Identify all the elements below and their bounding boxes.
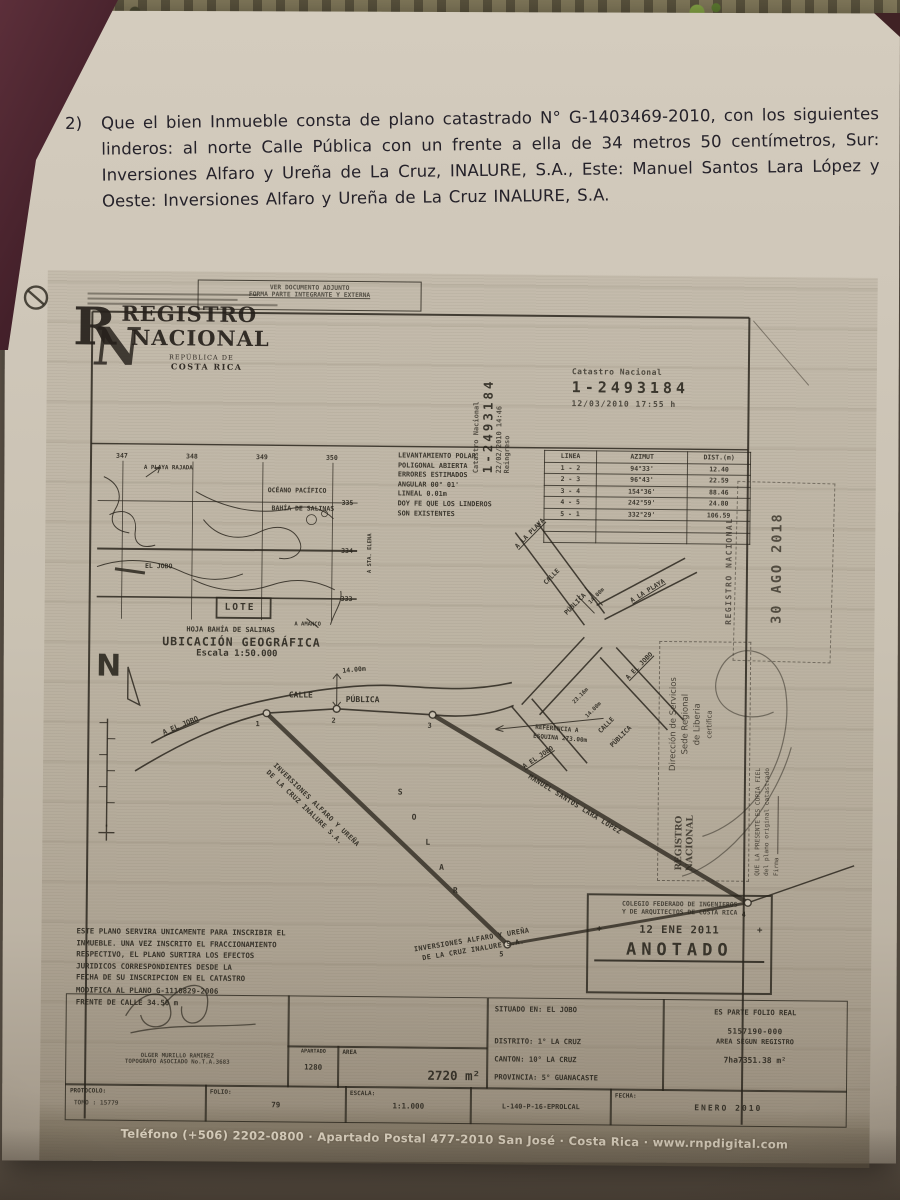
cfia-date: 12 ENE 2011 bbox=[639, 924, 720, 937]
attach-stamp-line2: FORMA PARTE INTEGRANTE Y EXTERNA bbox=[199, 291, 421, 300]
cert-line4: certifica bbox=[703, 642, 717, 806]
vertex-number: 3 bbox=[427, 722, 431, 730]
survey-notes: LEVANTAMIENTO POLAR POLIGONAL ABIERTA ER… bbox=[397, 451, 492, 519]
cert-body: QUE LA PRESENTE ES COPIA FIEL del plano … bbox=[753, 632, 783, 882]
apartado-value: 1280 bbox=[288, 1054, 338, 1071]
date-stamp: 30 AGO 2018 bbox=[768, 508, 785, 628]
table-row bbox=[544, 531, 750, 544]
location-box: SITUADO EN: EL JOBO DISTRITO: 1° LA CRUZ… bbox=[487, 997, 665, 1091]
plano-ref: L-140-P-16-EPROLCAL bbox=[471, 1088, 611, 1111]
signature-box: OLGER MURILLO RAMIREZ TOPOGRAFO ASOCIADO… bbox=[65, 993, 290, 1087]
map-label-el-jobo: EL JOBO bbox=[145, 562, 172, 570]
logo-word2: NACIONAL bbox=[131, 325, 270, 351]
cell bbox=[596, 531, 687, 543]
table-header: AZIMUT bbox=[597, 451, 688, 463]
map-label-oceano: OCÉANO PACÍFICO bbox=[268, 486, 327, 495]
survey-table: LINEA AZIMUT DIST.(m) 1 - 294°33'12.40 2… bbox=[543, 450, 751, 545]
grid-label: 349 bbox=[256, 453, 268, 461]
registro-nacional-logo: R N REGISTRO NACIONAL REPÚBLICA DE COSTA… bbox=[65, 300, 286, 382]
protocolo-box: PROTOCOLO: TOMO : 15779 bbox=[65, 1083, 207, 1121]
certification-stamp-box: REGISTRO NACIONAL Dirección de Servicios… bbox=[657, 641, 751, 882]
table-header: LINEA bbox=[545, 450, 597, 462]
catastro-vertical-block: Catastro Nacional 1-2493184 22/02/2010 1… bbox=[472, 323, 531, 474]
cert-logo-word2: NACIONAL bbox=[685, 806, 697, 880]
road-label-calle: CALLE bbox=[289, 690, 313, 699]
folio-label: FOLIO: bbox=[210, 1089, 232, 1096]
cfia-word-anotado: ANOTADO bbox=[594, 939, 764, 963]
folio-real-line1: ES PARTE FOLIO REAL bbox=[664, 1000, 847, 1018]
apartado-box: APARTADO 1280 bbox=[287, 1045, 339, 1087]
survey-note-line: DOY FE QUE LOS LINDEROS bbox=[398, 499, 492, 509]
cell: 12.40 bbox=[688, 463, 751, 475]
cell bbox=[596, 520, 687, 532]
catastro-stamp-datetime: 12/03/2010 17:55 h bbox=[572, 399, 689, 409]
cell bbox=[544, 531, 596, 543]
area-box: AREA 2720 m² bbox=[337, 1046, 487, 1089]
north-arrow-label: N bbox=[96, 649, 121, 684]
logo-word1: REGISTRO bbox=[121, 301, 257, 327]
signature-line bbox=[771, 796, 779, 854]
catastro-stamp-number: 1-2493184 bbox=[572, 378, 689, 397]
canton: CANTON: 10° LA CRUZ bbox=[494, 1054, 576, 1064]
area-label: AREA bbox=[342, 1049, 357, 1056]
cell: 2 - 3 bbox=[544, 473, 596, 485]
typed-paragraph: 2) Que el bien Inmueble consta de plano … bbox=[65, 101, 880, 215]
map-label-lote: LOTE bbox=[225, 602, 256, 613]
map-title: UBICACIÓN GEOGRÁFICA bbox=[162, 634, 321, 650]
road-label-publica: PÚBLICA bbox=[346, 695, 380, 704]
photo-frame: 2) Que el bien Inmueble consta de plano … bbox=[0, 0, 900, 1200]
blank-box bbox=[287, 995, 487, 1049]
solar-letter: A bbox=[439, 863, 444, 872]
situado: SITUADO EN: EL JOBO bbox=[495, 1004, 577, 1014]
escala-box: ESCALA: 1:1.000 bbox=[345, 1086, 472, 1124]
protocolo-value: TOMO : 15779 bbox=[74, 1099, 119, 1106]
cert-text-lines: Dirección de Servicios Sede Regional de … bbox=[659, 642, 751, 807]
logo-sub2: COSTA RICA bbox=[171, 361, 243, 372]
map-label-bahia: BAHÍA DE SALINAS bbox=[272, 504, 335, 513]
no-entry-icon bbox=[21, 282, 51, 316]
vertex-number: 2 bbox=[331, 717, 335, 725]
fecha-box: FECHA: ENERO 2010 bbox=[610, 1088, 847, 1127]
catastro-stamp: Catastro Nacional 1-2493184 12/03/2010 1… bbox=[572, 367, 690, 409]
distrito: DISTRITO: 1° LA CRUZ bbox=[494, 1036, 581, 1046]
vertex-number: 5 bbox=[499, 950, 503, 958]
folio-real-box: ES PARTE FOLIO REAL 5157190-000 AREA SEG… bbox=[662, 999, 848, 1093]
grid-label: 348 bbox=[186, 452, 198, 460]
cell: 5 - 1 bbox=[544, 508, 596, 520]
folio-real-line2: 5157190-000 bbox=[664, 1016, 847, 1037]
paragraph-text: Que el bien Inmueble consta de plano cat… bbox=[101, 104, 880, 210]
solar-letter: L bbox=[425, 838, 430, 847]
fecha-label: FECHA: bbox=[615, 1093, 637, 1100]
grid-label: 350 bbox=[326, 454, 338, 462]
cert-firma-row: Firma bbox=[771, 632, 783, 876]
survey-note-line: SON EXISTENTES bbox=[397, 509, 491, 519]
registro-vertical-stamp: REGISTRO NACIONAL bbox=[724, 491, 735, 651]
solar-letter: O bbox=[412, 813, 417, 822]
provincia: PROVINCIA: 5° GUANACASTE bbox=[494, 1072, 598, 1082]
map-label-amanco: A AMANCO bbox=[294, 621, 321, 627]
catastro-vertical-number: 1-2493184 bbox=[480, 323, 496, 473]
cell: 1 - 2 bbox=[544, 462, 596, 474]
stamp-plus-right: + bbox=[757, 926, 763, 936]
survey-note-line: ERRORES ESTIMADOS bbox=[398, 471, 492, 481]
map-scale: Escala 1:50.000 bbox=[196, 649, 277, 660]
folio-real-line4: 7ha7351.38 m² bbox=[663, 1045, 846, 1066]
cell: 332°29' bbox=[596, 508, 687, 520]
cfia-anotado-stamp: COLEGIO FEDERADO DE INGENIEROS Y DE ARQU… bbox=[586, 893, 773, 995]
cert-firma-label: Firma bbox=[773, 857, 780, 876]
cert-mini-logo: REGISTRO NACIONAL bbox=[658, 806, 749, 881]
cell: 94°33' bbox=[596, 462, 687, 474]
grid-label: 334 bbox=[341, 547, 353, 555]
cell: 3 - 4 bbox=[544, 485, 596, 497]
catastro-stamp-label: Catastro Nacional bbox=[572, 367, 689, 377]
cell: 242°59' bbox=[596, 497, 687, 509]
cell: 4 - 5 bbox=[544, 496, 596, 508]
fecha-value: ENERO 2010 bbox=[611, 1090, 846, 1114]
cert-logo-word1: REGISTRO bbox=[674, 806, 686, 880]
certification-stamp: REGISTRO NACIONAL Dirección de Servicios… bbox=[657, 631, 809, 882]
cell: 154°36' bbox=[596, 485, 687, 497]
catastro-vertical-note: Reingreso bbox=[503, 323, 512, 473]
plano-ref-box: L-140-P-16-EPROLCAL bbox=[470, 1087, 612, 1125]
escala-label: ESCALA: bbox=[350, 1090, 375, 1097]
document-paper: 2) Que el bien Inmueble consta de plano … bbox=[2, 10, 900, 1163]
grid-label: 347 bbox=[116, 452, 128, 460]
cell: 96°43' bbox=[596, 474, 687, 486]
folio-box: FOLIO: 79 bbox=[205, 1085, 347, 1123]
vertex-number: 1 bbox=[255, 720, 259, 728]
map-label-sta-elena: A STA. ELENA bbox=[367, 533, 373, 573]
protocolo-label: PROTOCOLO: bbox=[70, 1087, 106, 1094]
solar-letter: R bbox=[453, 886, 458, 895]
surveyor-title: TOPOGRAFO ASOCIADO No.T.A.3683 bbox=[66, 1058, 288, 1066]
table-header: DIST.(m) bbox=[688, 452, 751, 464]
grid-label: 335 bbox=[342, 499, 354, 507]
solar-letter: S bbox=[398, 787, 403, 796]
survey-note-line: LEVANTAMIENTO POLAR bbox=[398, 451, 492, 461]
area-value: 2720 m² bbox=[427, 1068, 480, 1084]
map-sheet-name: HOJA BAHÍA DE SALINAS bbox=[186, 625, 275, 634]
map-label-playa-rajada: A PLAYA RAJADA bbox=[144, 465, 193, 471]
cadastral-plan-scan: VER DOCUMENTO ADJUNTO FORMA PARTE INTEGR… bbox=[39, 270, 878, 1168]
stamp-plus-left: + bbox=[596, 924, 602, 934]
catastro-vertical-label: Catastro Nacional bbox=[472, 323, 481, 473]
paragraph-number: 2) bbox=[65, 111, 82, 137]
grid-label: 333 bbox=[341, 595, 353, 603]
cell bbox=[544, 519, 596, 531]
